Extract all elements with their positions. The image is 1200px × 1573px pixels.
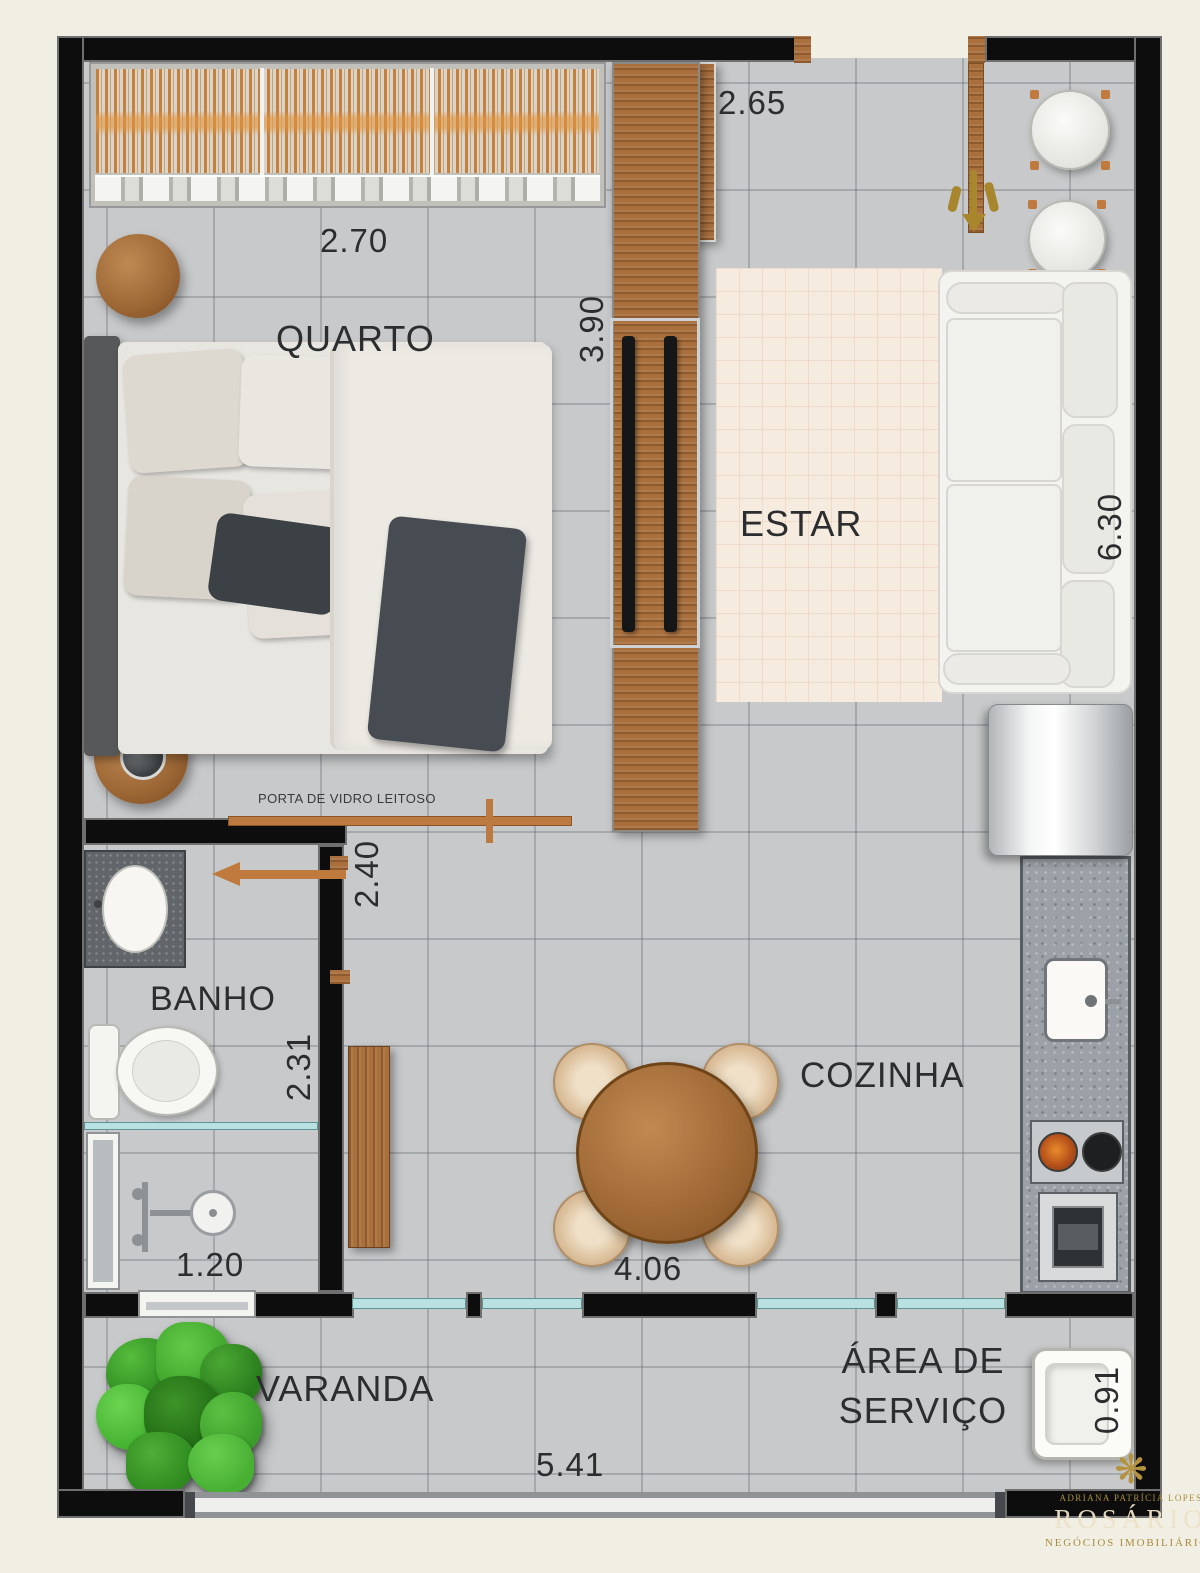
cooktop bbox=[1030, 1120, 1124, 1184]
door-swing-arrowhead bbox=[212, 862, 240, 886]
room-label-area-servico: ÁREA DE SERVIÇO bbox=[818, 1340, 1028, 1432]
window-frame bbox=[466, 1292, 482, 1318]
pillow bbox=[122, 348, 250, 474]
agent-name: ADRIANA PATRÍCIA LOPES bbox=[1026, 1493, 1200, 1503]
dim-servico-depth: 0.91 bbox=[1087, 1350, 1127, 1450]
vanity-sink bbox=[102, 865, 168, 953]
dim-banho-width: 1.20 bbox=[176, 1246, 244, 1284]
wall bbox=[582, 1292, 757, 1318]
tv-bedroom bbox=[622, 336, 635, 632]
guardrail-post bbox=[995, 1492, 1005, 1518]
fridge bbox=[988, 704, 1133, 856]
sofa-armrest-top bbox=[946, 282, 1068, 314]
rosette-ornament-icon: ❋ bbox=[1026, 1450, 1200, 1490]
room-label-cozinha: COZINHA bbox=[800, 1056, 965, 1096]
wall bbox=[57, 36, 810, 62]
dim-quarto-width: 2.70 bbox=[320, 222, 388, 260]
potted-plant-icon bbox=[96, 1322, 264, 1504]
dim-quarto-door: 2.40 bbox=[347, 824, 387, 924]
bedside-stool bbox=[96, 234, 180, 318]
door-jamb bbox=[968, 36, 985, 63]
dim-cozinha-width: 4.06 bbox=[614, 1250, 682, 1288]
wall bbox=[1134, 36, 1162, 1518]
round-side-table bbox=[1028, 200, 1106, 278]
blanket bbox=[367, 515, 528, 752]
rug bbox=[716, 268, 942, 702]
burner-icon bbox=[1082, 1132, 1122, 1172]
sliding-glass-door bbox=[228, 816, 572, 826]
kitchen-sink bbox=[1044, 958, 1108, 1042]
balcony-guardrail bbox=[185, 1492, 1005, 1518]
dim-banho-depth: 2.31 bbox=[279, 1017, 319, 1117]
room-label-quarto: QUARTO bbox=[276, 318, 435, 360]
shower-glass-partition bbox=[84, 1122, 318, 1130]
wardrobe-divider bbox=[430, 68, 434, 176]
guardrail-post bbox=[185, 1492, 195, 1518]
glass-door-pane bbox=[482, 1298, 582, 1309]
sofa-armrest-bottom bbox=[943, 653, 1071, 685]
door-jamb bbox=[330, 856, 348, 870]
dim-varanda-width: 5.41 bbox=[536, 1446, 604, 1484]
wall bbox=[57, 36, 84, 1518]
dim-hall-width: 2.65 bbox=[718, 84, 786, 122]
tv-living bbox=[664, 336, 677, 632]
door-handle-mark bbox=[469, 817, 511, 824]
dining-table bbox=[576, 1062, 758, 1244]
brand-tagline: NEGÓCIOS IMOBILIÁRIOS bbox=[1026, 1537, 1200, 1549]
wardrobe-hangers bbox=[96, 69, 599, 173]
wall bbox=[57, 1489, 185, 1518]
dark-throw-pillow bbox=[206, 512, 345, 617]
toilet-bowl bbox=[116, 1026, 218, 1116]
bathroom-vanity bbox=[84, 850, 186, 968]
room-label-banho: BANHO bbox=[150, 980, 276, 1019]
dim-estar-depth: 6.30 bbox=[1090, 477, 1130, 577]
door-jamb bbox=[330, 970, 350, 984]
entry-arrow-icon bbox=[940, 170, 1004, 234]
sliding-door-note: PORTA DE VIDRO LEITOSO bbox=[258, 791, 436, 806]
wall-bathroom-right bbox=[318, 845, 344, 1292]
door-jamb bbox=[794, 36, 811, 63]
agency-watermark: ❋ ADRIANA PATRÍCIA LOPES ROSÁRIO NEGÓCIO… bbox=[1026, 1450, 1200, 1549]
sofa-back-cushion bbox=[1062, 282, 1118, 418]
glass-door-pane bbox=[897, 1298, 1005, 1309]
room-label-varanda: VARANDA bbox=[256, 1368, 434, 1410]
wall bbox=[1005, 1292, 1134, 1318]
wardrobe bbox=[89, 62, 606, 208]
wall bbox=[875, 1292, 897, 1318]
bed-headboard bbox=[84, 336, 120, 756]
shower-knob bbox=[132, 1234, 144, 1246]
oven bbox=[1038, 1192, 1118, 1282]
wall bbox=[254, 1292, 354, 1318]
sideboard bbox=[348, 1046, 390, 1248]
wardrobe-sliding-track bbox=[95, 175, 600, 201]
round-side-table bbox=[1030, 90, 1110, 170]
shower-head bbox=[190, 1190, 236, 1236]
glass-door-pane bbox=[757, 1298, 875, 1309]
shower-door-panel bbox=[86, 1132, 120, 1290]
wall bbox=[84, 1292, 140, 1318]
dim-quarto-depth: 3.90 bbox=[572, 279, 612, 379]
sofa-seat-cushion bbox=[946, 484, 1062, 652]
door-swing-arrow bbox=[238, 870, 346, 879]
window bbox=[138, 1290, 256, 1318]
pan-on-burner-icon bbox=[1038, 1132, 1078, 1172]
wardrobe-divider bbox=[260, 68, 264, 176]
sofa-seat-cushion bbox=[946, 318, 1062, 482]
room-label-estar: ESTAR bbox=[740, 503, 862, 545]
shower-knob bbox=[132, 1188, 144, 1200]
floorplan-image: PORTA DE VIDRO LEITOSO bbox=[0, 0, 1200, 1573]
glass-door-pane bbox=[352, 1298, 466, 1309]
brand-name: ROSÁRIO bbox=[1026, 1504, 1200, 1535]
